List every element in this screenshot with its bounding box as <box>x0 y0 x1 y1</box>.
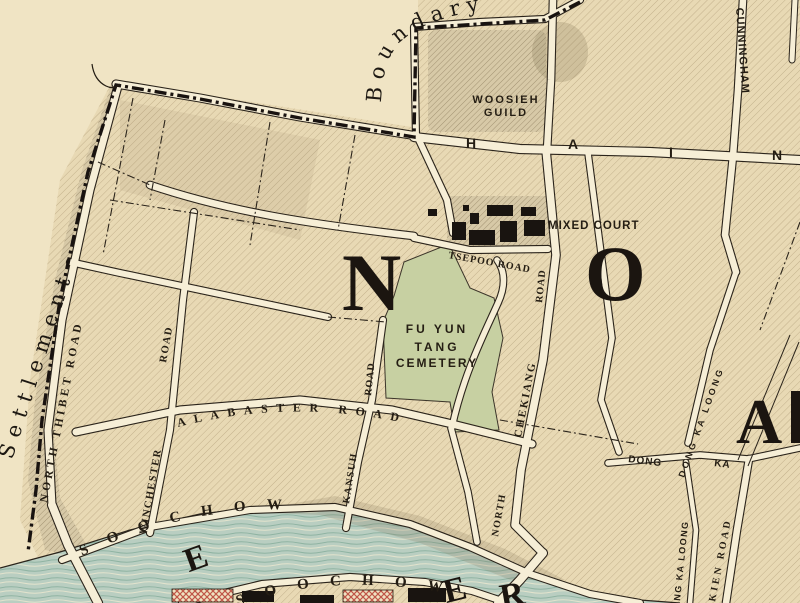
clipped-letter-stem <box>791 391 800 443</box>
woosieh-guild-label-line2: GUILD <box>484 107 528 119</box>
cemetery-label-line1: FU YUN <box>406 322 468 336</box>
haining-letter-i: I <box>669 144 673 160</box>
shanghai-settlement-map: Boundary Settlement WOOSIEH GUILD MIXED … <box>0 0 800 603</box>
ka-street-label: KA <box>714 458 732 471</box>
cemetery-label-line2: TANG <box>414 340 459 354</box>
red-building <box>343 590 393 602</box>
road-top-right <box>792 0 795 60</box>
district-letter-a-partial: A <box>736 386 782 457</box>
haining-letter-a: A <box>568 136 578 152</box>
woosieh-guild-label-line1: WOOSIEH <box>472 94 539 106</box>
haining-letter-n: N <box>772 147 782 163</box>
black-building <box>300 595 334 603</box>
map-canvas: Boundary Settlement WOOSIEH GUILD MIXED … <box>0 0 800 603</box>
haining-letter-h: H <box>466 135 476 151</box>
red-building <box>172 589 233 602</box>
district-letter-n: N <box>342 237 401 328</box>
shading-smudge <box>532 22 588 82</box>
cemetery-label-line3: CEMETERY <box>396 356 478 370</box>
district-letter-o: O <box>585 230 646 317</box>
